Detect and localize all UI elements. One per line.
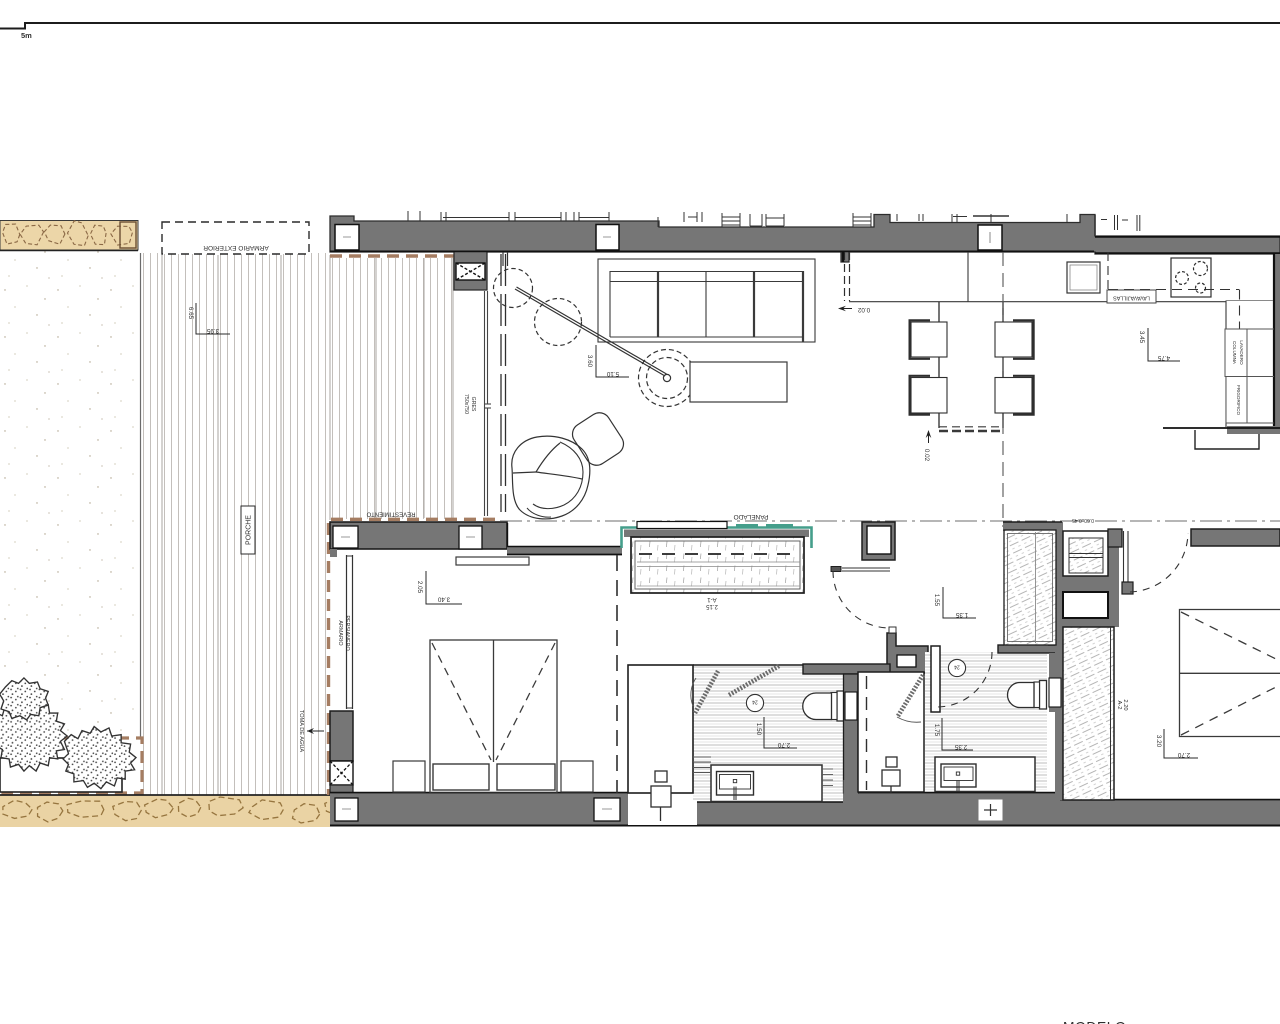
- svg-text:3.60: 3.60: [586, 355, 593, 368]
- svg-text:2.35: 2.35: [954, 743, 967, 750]
- svg-text:FRIGORIFICO: FRIGORIFICO: [1236, 385, 1241, 416]
- svg-text:5m: 5m: [21, 31, 32, 40]
- svg-text:24: 24: [954, 664, 960, 670]
- svg-text:A-1: A-1: [707, 596, 717, 602]
- svg-text:2.15: 2.15: [706, 603, 718, 609]
- svg-text:5.10: 5.10: [606, 370, 619, 377]
- svg-text:0.60x0.45: 0.60x0.45: [1072, 517, 1094, 523]
- svg-text:0.02: 0.02: [857, 306, 870, 313]
- svg-text:ARMARIO: ARMARIO: [337, 620, 343, 645]
- svg-text:REVESTIMIENTO: REVESTIMIENTO: [366, 511, 415, 517]
- svg-text:1.50: 1.50: [755, 723, 762, 736]
- svg-text:2.70: 2.70: [1177, 751, 1190, 758]
- svg-text:A-2: A-2: [1116, 700, 1122, 709]
- svg-text:3.20: 3.20: [1155, 735, 1162, 748]
- svg-text:COLUMNA: COLUMNA: [1232, 341, 1237, 365]
- svg-text:2.05: 2.05: [416, 581, 423, 594]
- svg-text:1.35: 1.35: [955, 611, 968, 618]
- svg-text:PORCHE: PORCHE: [246, 515, 253, 545]
- svg-text:GRES: GRES: [470, 397, 476, 412]
- svg-text:4.75: 4.75: [1157, 354, 1170, 361]
- svg-text:6.65: 6.65: [187, 307, 194, 320]
- svg-text:TOMA DE AGUA: TOMA DE AGUA: [298, 710, 304, 752]
- svg-text:2.20: 2.20: [1122, 699, 1128, 710]
- svg-text:PERSIANERO: PERSIANERO: [344, 615, 350, 650]
- svg-text:0.02: 0.02: [923, 449, 930, 462]
- svg-text:24: 24: [752, 699, 758, 705]
- svg-text:1.75: 1.75: [933, 724, 940, 737]
- svg-text:MODELO: MODELO: [1063, 1020, 1126, 1024]
- svg-text:LAVADERO: LAVADERO: [1239, 340, 1244, 365]
- svg-text:2.70: 2.70: [777, 741, 790, 748]
- svg-text:3.40: 3.40: [437, 596, 450, 603]
- svg-text:750x750: 750x750: [463, 394, 469, 414]
- svg-text:1.55: 1.55: [933, 594, 940, 607]
- svg-text:3.45: 3.45: [1138, 331, 1145, 344]
- svg-text:3.95: 3.95: [206, 327, 219, 334]
- svg-text:LAVAVAJILLAS: LAVAVAJILLAS: [1113, 295, 1150, 301]
- svg-text:ARMARIO EXTERIOR: ARMARIO EXTERIOR: [203, 244, 269, 251]
- svg-text:PANELADO: PANELADO: [734, 513, 769, 520]
